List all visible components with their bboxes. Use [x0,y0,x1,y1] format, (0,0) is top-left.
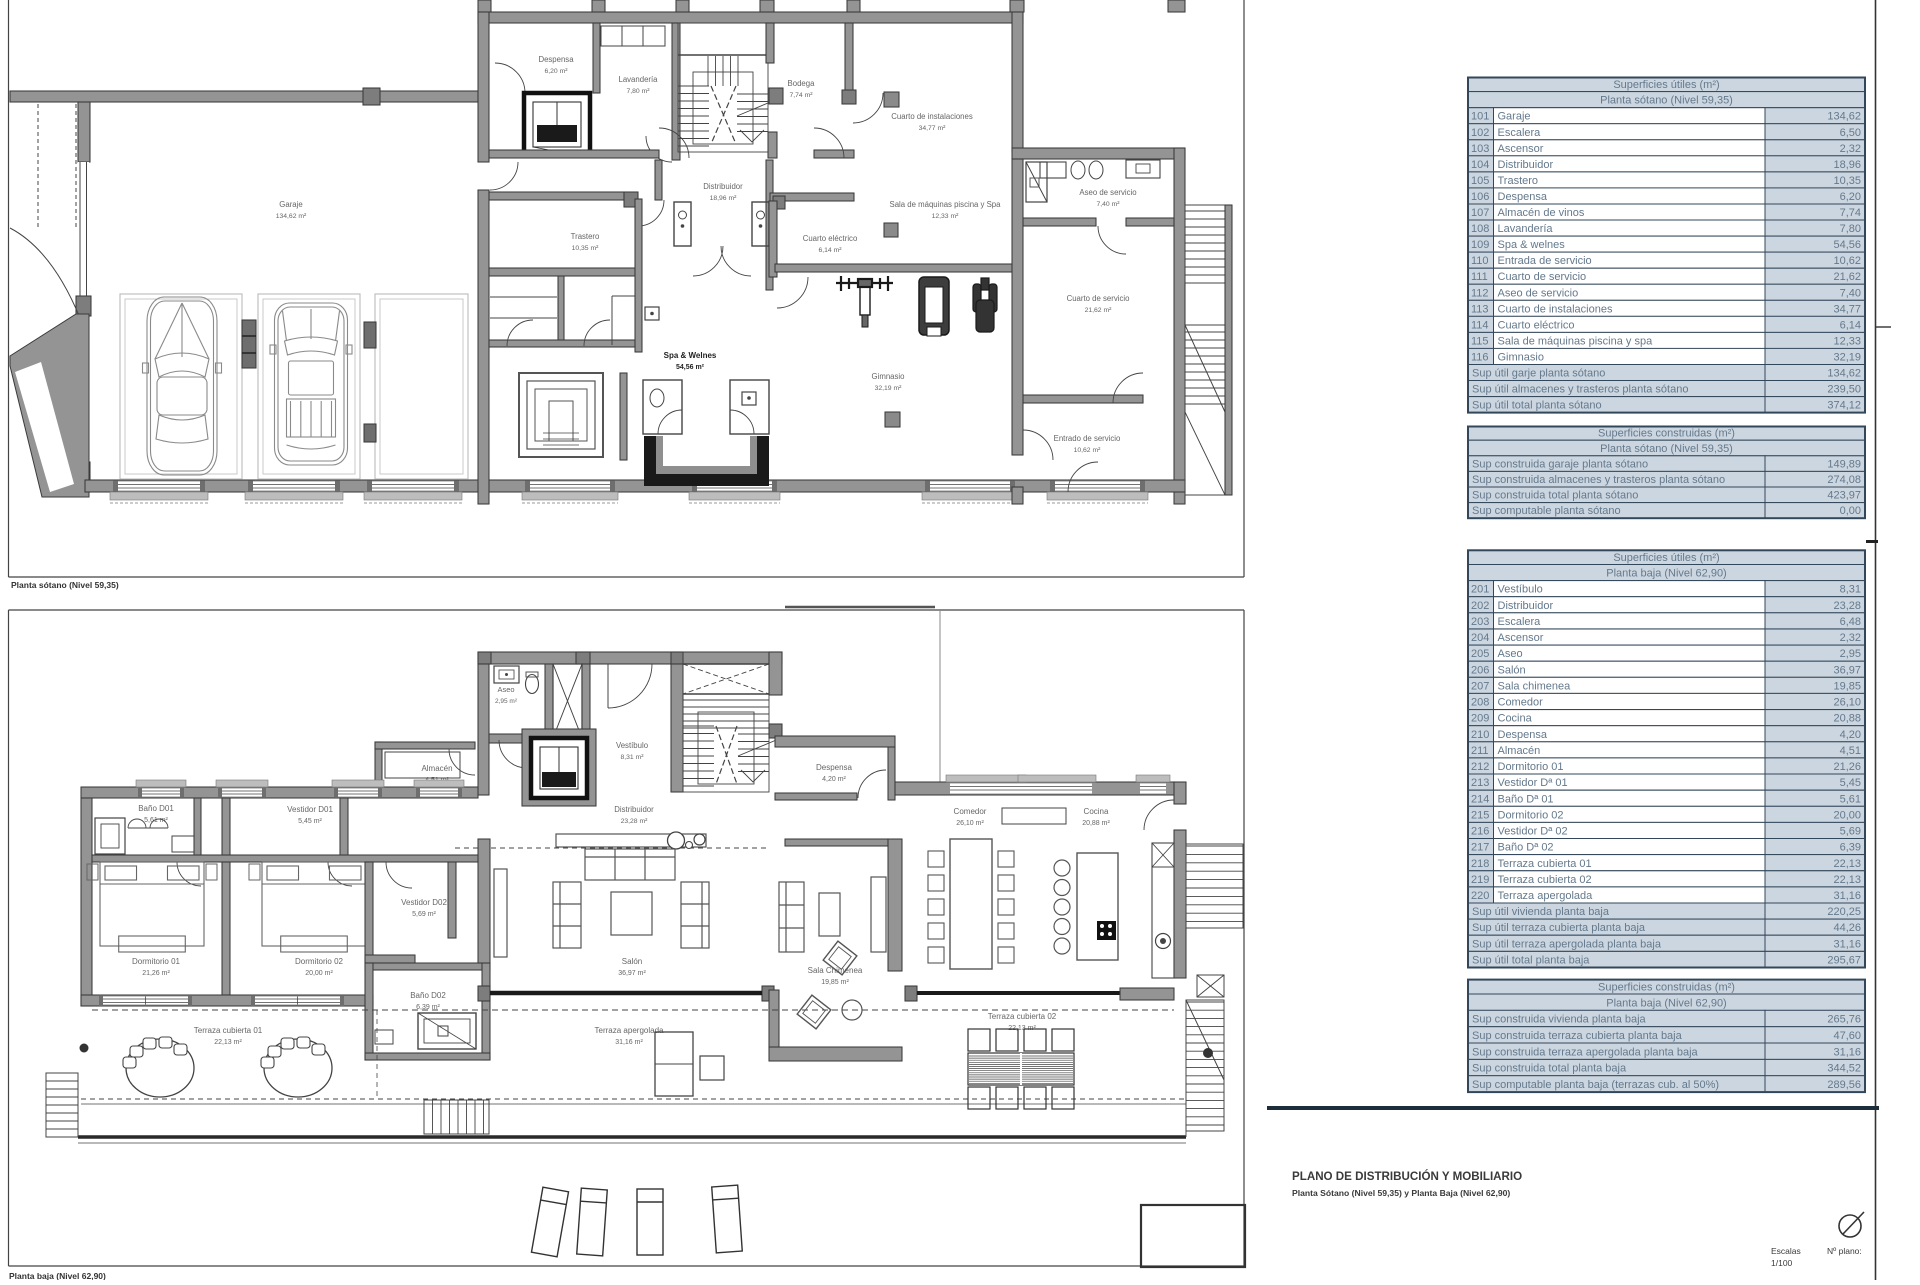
svg-text:Entrada de servicio: Entrada de servicio [1498,255,1592,267]
svg-text:206: 206 [1471,664,1489,676]
svg-text:211: 211 [1471,745,1489,757]
svg-text:Superficies construidas (m²): Superficies construidas (m²) [1598,982,1735,994]
svg-text:Cuarto de instalaciones: Cuarto de instalaciones [891,112,973,121]
svg-text:7,74 m²: 7,74 m² [789,92,813,99]
svg-text:7,80 m²: 7,80 m² [626,88,650,95]
svg-text:12,33: 12,33 [1833,335,1861,347]
svg-text:Planta sótano (Nivel 59,35): Planta sótano (Nivel 59,35) [1600,95,1733,107]
svg-text:Entrado de servicio: Entrado de servicio [1054,434,1121,443]
svg-text:219: 219 [1471,874,1489,886]
svg-text:4,20: 4,20 [1840,729,1861,741]
svg-text:4,20 m²: 4,20 m² [822,776,846,783]
svg-text:2,95 m²: 2,95 m² [495,698,518,705]
svg-text:22,13: 22,13 [1833,858,1861,870]
svg-text:Aseo: Aseo [1498,648,1523,660]
svg-text:Planta baja (Nivel 62,90): Planta baja (Nivel 62,90) [9,1271,106,1280]
svg-text:134,62: 134,62 [1827,111,1861,123]
svg-text:Sup computable planta sótano: Sup computable planta sótano [1472,505,1621,517]
svg-text:Distribuidor: Distribuidor [1498,159,1554,171]
svg-text:7,74: 7,74 [1840,207,1861,219]
svg-text:19,85: 19,85 [1833,680,1861,692]
svg-text:Trastero: Trastero [1498,175,1539,187]
svg-text:Baño Dª 01: Baño Dª 01 [1498,793,1554,805]
svg-text:110: 110 [1471,255,1489,267]
svg-text:216: 216 [1471,826,1489,838]
svg-text:Despensa: Despensa [1498,191,1548,203]
svg-text:10,62: 10,62 [1833,255,1861,267]
svg-text:107: 107 [1471,207,1489,219]
svg-text:Sup construida terraza cubiert: Sup construida terraza cubierta planta b… [1472,1030,1683,1042]
svg-text:12,33 m²: 12,33 m² [932,213,960,220]
svg-text:22,13: 22,13 [1833,874,1861,886]
svg-text:Sup construida total planta só: Sup construida total planta sótano [1472,490,1638,502]
svg-text:Escalera: Escalera [1498,127,1542,139]
svg-text:113: 113 [1471,303,1489,315]
svg-text:215: 215 [1471,809,1489,821]
svg-text:4,51: 4,51 [1840,745,1861,757]
svg-text:103: 103 [1471,143,1489,155]
svg-text:31,16 m²: 31,16 m² [615,1039,643,1046]
svg-text:18,96 m²: 18,96 m² [710,195,738,202]
svg-text:44,26: 44,26 [1833,922,1861,934]
svg-text:Spa & welnes: Spa & welnes [1498,239,1566,251]
svg-text:10,35: 10,35 [1833,175,1861,187]
svg-text:Sup construida terraza apergol: Sup construida terraza apergolada planta… [1472,1046,1699,1058]
svg-text:Sup útil garje planta sótano: Sup útil garje planta sótano [1472,368,1605,380]
svg-text:Sala chimenea: Sala chimenea [1498,680,1572,692]
svg-text:5,61: 5,61 [1840,793,1861,805]
svg-text:114: 114 [1471,319,1489,331]
svg-text:265,76: 265,76 [1827,1014,1861,1026]
svg-text:5,45: 5,45 [1840,777,1861,789]
svg-text:Sup construida total planta ba: Sup construida total planta baja [1472,1063,1627,1075]
svg-text:5,69: 5,69 [1840,826,1861,838]
svg-text:Superficies construidas (m²): Superficies construidas (m²) [1598,428,1735,440]
svg-text:36,97: 36,97 [1833,664,1861,676]
svg-text:207: 207 [1471,680,1489,692]
svg-text:1/100: 1/100 [1771,1258,1793,1268]
svg-text:217: 217 [1471,842,1489,854]
svg-text:105: 105 [1471,175,1489,187]
svg-text:Sup construida garaje planta s: Sup construida garaje planta sótano [1472,458,1648,470]
svg-text:6,14: 6,14 [1840,319,1861,331]
svg-text:Lavandería: Lavandería [618,75,658,84]
svg-text:Escalera: Escalera [1498,616,1542,628]
svg-text:Dormitorio 01: Dormitorio 01 [1498,761,1564,773]
svg-text:20,88: 20,88 [1833,713,1861,725]
svg-text:32,19 m²: 32,19 m² [875,385,903,392]
svg-text:Sup útil terraza cubierta plan: Sup útil terraza cubierta planta baja [1472,922,1646,934]
svg-text:Nº plano:: Nº plano: [1827,1246,1862,1256]
svg-text:Cocina: Cocina [1498,713,1533,725]
svg-text:26,10 m²: 26,10 m² [956,820,984,827]
svg-text:209: 209 [1471,713,1489,725]
svg-text:34,77 m²: 34,77 m² [919,125,947,132]
svg-text:20,88 m²: 20,88 m² [1082,820,1110,827]
svg-text:Spa & Welnes: Spa & Welnes [664,351,717,360]
svg-text:20,00 m²: 20,00 m² [305,970,333,977]
svg-text:26,10: 26,10 [1833,697,1861,709]
svg-text:8,31: 8,31 [1840,584,1861,596]
svg-text:101: 101 [1471,111,1489,123]
svg-text:115: 115 [1471,335,1489,347]
svg-text:Planta Sótano (Nivel 59,35) y: Planta Sótano (Nivel 59,35) y Planta Baj… [1292,1188,1510,1198]
svg-text:149,89: 149,89 [1827,458,1861,470]
svg-text:111: 111 [1471,271,1488,283]
svg-text:6,20: 6,20 [1840,191,1861,203]
svg-text:7,40: 7,40 [1840,287,1861,299]
svg-text:Aseo: Aseo [497,685,514,694]
svg-text:Terraza apergolada: Terraza apergolada [1498,890,1594,902]
svg-text:Sala de máquinas piscina y spa: Sala de máquinas piscina y spa [1498,335,1654,347]
svg-text:Sup útil almacenes y trasteros: Sup útil almacenes y trasteros planta só… [1472,384,1688,396]
svg-text:Dormitorio 02: Dormitorio 02 [1498,809,1564,821]
svg-text:Cuarto de servicio: Cuarto de servicio [1498,271,1587,283]
svg-text:6,39: 6,39 [1840,842,1861,854]
svg-text:Trastero: Trastero [571,232,600,241]
svg-text:Terraza cubierta 02: Terraza cubierta 02 [1498,874,1592,886]
svg-text:5,61 m²: 5,61 m² [144,817,168,824]
svg-text:32,19: 32,19 [1833,352,1861,364]
svg-text:Terraza cubierta 02: Terraza cubierta 02 [988,1012,1057,1021]
svg-text:Terraza cubierta 01: Terraza cubierta 01 [1498,858,1592,870]
svg-text:8,31 m²: 8,31 m² [620,754,644,761]
svg-text:Vestíbulo: Vestíbulo [1498,584,1543,596]
svg-text:108: 108 [1471,223,1489,235]
svg-text:6,20 m²: 6,20 m² [544,68,568,75]
svg-text:23,28: 23,28 [1833,600,1861,612]
svg-text:22,13 m²: 22,13 m² [214,1039,242,1046]
svg-text:Comedor: Comedor [1498,697,1544,709]
svg-text:Sala Chimenea: Sala Chimenea [808,966,863,975]
svg-text:205: 205 [1471,648,1489,660]
svg-text:Cuarto de servicio: Cuarto de servicio [1067,294,1130,303]
svg-text:Sup útil total planta baja: Sup útil total planta baja [1472,955,1590,967]
svg-text:21,26 m²: 21,26 m² [142,970,170,977]
svg-text:201: 201 [1471,584,1489,596]
svg-text:Distribuidor: Distribuidor [614,805,654,814]
svg-text:Cuarto de instalaciones: Cuarto de instalaciones [1498,303,1613,315]
svg-text:19,85 m²: 19,85 m² [821,979,849,986]
svg-text:202: 202 [1471,600,1489,612]
svg-text:Ascensor: Ascensor [1498,632,1544,644]
svg-text:Sup útil total planta sótano: Sup útil total planta sótano [1472,400,1602,412]
svg-text:Gimnasio: Gimnasio [872,372,906,381]
svg-text:21,62 m²: 21,62 m² [1085,307,1113,314]
svg-text:289,56: 289,56 [1827,1079,1861,1091]
svg-text:Vestíbulo: Vestíbulo [616,741,649,750]
svg-text:2,32: 2,32 [1840,632,1861,644]
svg-text:Almacén: Almacén [1498,745,1541,757]
svg-text:10,35 m²: 10,35 m² [572,245,600,252]
svg-text:Despensa: Despensa [538,55,574,64]
svg-text:Salón: Salón [1498,664,1526,676]
svg-text:Sup construida almacenes y tra: Sup construida almacenes y trasteros pla… [1472,474,1725,486]
svg-text:208: 208 [1471,697,1489,709]
svg-text:Distribuidor: Distribuidor [703,182,743,191]
svg-text:274,08: 274,08 [1827,474,1861,486]
svg-text:203: 203 [1471,616,1489,628]
svg-text:54,56: 54,56 [1833,239,1861,251]
svg-text:54,56 m²: 54,56 m² [676,364,705,371]
svg-text:5,69 m²: 5,69 m² [412,911,436,918]
svg-text:Cocina: Cocina [1084,807,1109,816]
svg-text:Cuarto eléctrico: Cuarto eléctrico [803,234,858,243]
svg-text:Comedor: Comedor [954,807,987,816]
svg-text:Sup útil vivienda planta baja: Sup útil vivienda planta baja [1472,906,1610,918]
svg-text:213: 213 [1471,777,1489,789]
svg-text:Gimnasio: Gimnasio [1498,352,1544,364]
svg-text:220: 220 [1471,890,1489,902]
svg-text:5,45 m²: 5,45 m² [298,818,322,825]
svg-text:Planta sótano (Nivel 59,35): Planta sótano (Nivel 59,35) [1600,443,1733,455]
svg-text:106: 106 [1471,191,1489,203]
svg-text:Garaje: Garaje [279,200,302,209]
svg-text:6,48: 6,48 [1840,616,1861,628]
svg-text:Sup computable planta baja (te: Sup computable planta baja (terrazas cub… [1472,1079,1719,1091]
svg-text:Distribuidor: Distribuidor [1498,600,1554,612]
svg-text:7,80: 7,80 [1840,223,1861,235]
svg-text:104: 104 [1471,159,1489,171]
svg-text:Planta baja (Nivel 62,90): Planta baja (Nivel 62,90) [1606,568,1726,580]
svg-text:112: 112 [1471,287,1489,299]
svg-text:109: 109 [1471,239,1489,251]
svg-text:21,26: 21,26 [1833,761,1861,773]
svg-text:Despensa: Despensa [816,763,853,772]
svg-text:374,12: 374,12 [1827,400,1861,412]
svg-text:Almacén: Almacén [421,764,452,773]
svg-text:Terraza cubierta 01: Terraza cubierta 01 [194,1026,263,1035]
svg-text:10,62 m²: 10,62 m² [1074,447,1102,454]
svg-text:Dormitorio 01: Dormitorio 01 [132,957,181,966]
svg-text:Almacén de vinos: Almacén de vinos [1498,207,1585,219]
svg-text:36,97 m²: 36,97 m² [618,970,646,977]
svg-text:134,62: 134,62 [1827,368,1861,380]
svg-text:6,14 m²: 6,14 m² [818,247,842,254]
svg-text:18,96: 18,96 [1833,159,1861,171]
svg-text:295,67: 295,67 [1827,955,1861,967]
svg-text:Aseo de servicio: Aseo de servicio [1498,287,1579,299]
svg-text:214: 214 [1471,793,1489,805]
svg-text:116: 116 [1471,352,1489,364]
svg-text:Sup construida vivienda planta: Sup construida vivienda planta baja [1472,1014,1647,1026]
svg-text:2,95: 2,95 [1840,648,1861,660]
svg-text:Vestidor D02: Vestidor D02 [401,898,447,907]
svg-text:Cuarto eléctrico: Cuarto eléctrico [1498,319,1575,331]
svg-text:23,28 m²: 23,28 m² [621,818,649,825]
svg-text:Despensa: Despensa [1498,729,1548,741]
svg-text:220,25: 220,25 [1827,906,1861,918]
svg-text:Sala de máquinas piscina y Spa: Sala de máquinas piscina y Spa [890,200,1002,209]
svg-text:0,00: 0,00 [1840,505,1861,517]
svg-text:7,40 m²: 7,40 m² [1096,201,1120,208]
svg-text:31,16: 31,16 [1833,938,1861,950]
svg-text:Salón: Salón [622,957,642,966]
svg-text:Planta sótano (Nivel 59,35): Planta sótano (Nivel 59,35) [11,580,119,590]
svg-text:344,52: 344,52 [1827,1063,1861,1075]
svg-text:Vestidor D01: Vestidor D01 [287,805,333,814]
svg-text:6,50: 6,50 [1840,127,1861,139]
svg-text:Dormitorio 02: Dormitorio 02 [295,957,344,966]
svg-text:Baño Dª 02: Baño Dª 02 [1498,842,1554,854]
svg-text:218: 218 [1471,858,1489,870]
svg-text:Baño D02: Baño D02 [410,991,446,1000]
svg-text:Vestidor Dª 01: Vestidor Dª 01 [1498,777,1568,789]
svg-text:Vestidor Dª 02: Vestidor Dª 02 [1498,826,1568,838]
svg-text:Bodega: Bodega [788,79,816,88]
svg-text:Escalas: Escalas [1771,1246,1801,1256]
svg-text:423,97: 423,97 [1827,490,1861,502]
svg-text:20,00: 20,00 [1833,809,1861,821]
svg-text:21,62: 21,62 [1833,271,1861,283]
svg-text:31,16: 31,16 [1833,1046,1861,1058]
svg-text:Terraza apergolada: Terraza apergolada [595,1026,664,1035]
svg-text:Lavandería: Lavandería [1498,223,1554,235]
svg-text:Garaje: Garaje [1498,111,1531,123]
svg-text:239,50: 239,50 [1827,384,1861,396]
svg-text:47,60: 47,60 [1833,1030,1861,1042]
svg-text:PLANO DE DISTRIBUCIÓN Y MOBILI: PLANO DE DISTRIBUCIÓN Y MOBILIARIO [1292,1170,1522,1183]
svg-text:102: 102 [1471,127,1489,139]
svg-text:Aseo de servicio: Aseo de servicio [1079,188,1137,197]
svg-text:Superficies útiles (m²): Superficies útiles (m²) [1613,79,1719,91]
svg-text:210: 210 [1471,729,1489,741]
svg-text:204: 204 [1471,632,1489,644]
svg-text:Superficies útiles (m²): Superficies útiles (m²) [1613,552,1719,564]
svg-text:Sup útil terraza apergolada pl: Sup útil terraza apergolada planta baja [1472,938,1662,950]
svg-text:31,16: 31,16 [1833,890,1861,902]
svg-text:Baño D01: Baño D01 [138,804,174,813]
svg-text:212: 212 [1471,761,1489,773]
svg-text:34,77: 34,77 [1833,303,1861,315]
svg-text:134,62 m²: 134,62 m² [276,213,307,220]
svg-text:Ascensor: Ascensor [1498,143,1544,155]
svg-text:Planta baja (Nivel 62,90): Planta baja (Nivel 62,90) [1606,997,1726,1009]
svg-text:2,32: 2,32 [1840,143,1861,155]
